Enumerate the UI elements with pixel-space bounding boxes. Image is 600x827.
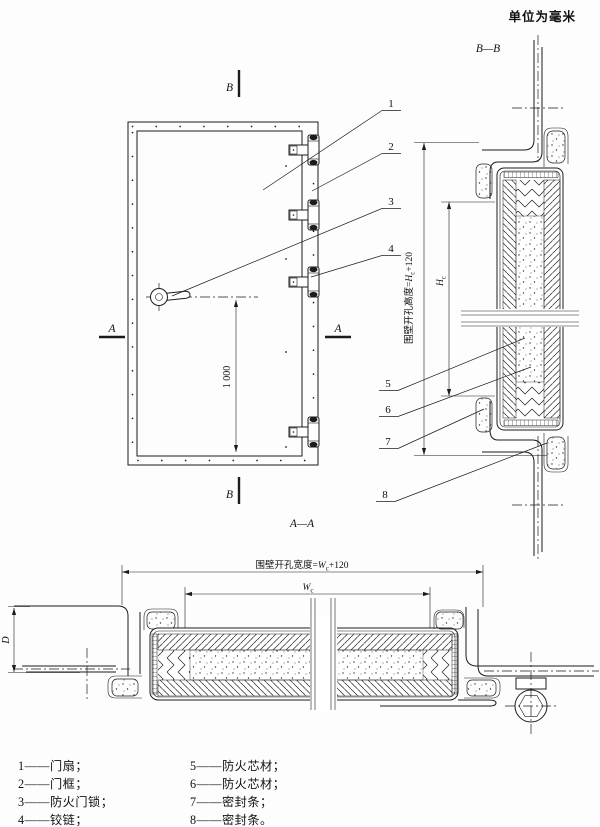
core-chevron-right — [423, 650, 452, 680]
legend-item-2: 2——门框； — [18, 775, 113, 793]
seal-strip-left-bottom — [112, 679, 138, 696]
dim-bb-outer-label: 围壁开孔高度=Hc+120 — [403, 252, 417, 344]
fire-core-layer-right — [544, 180, 560, 418]
technical-drawing: B B A A — [0, 0, 600, 827]
dim-depth-label: D — [1, 636, 12, 645]
frame-right-outer — [466, 607, 594, 666]
dim-aa-outer-label: 围壁开孔宽度=Wc+120 — [256, 559, 349, 573]
core-chevron-left — [158, 650, 190, 680]
legend-column-2: 5——防火芯材； 6——防火芯材； 7——密封条； 8——密封条。 — [190, 757, 285, 827]
dimension-depth: D — [1, 607, 80, 673]
drawing-page: 单位为毫米 — [0, 0, 600, 827]
dimension-bb-inner: Hc — [436, 202, 495, 396]
callout-6: 6 — [385, 404, 391, 416]
legend-item-7: 7——密封条； — [190, 793, 285, 811]
callout-8: 8 — [382, 489, 388, 501]
callout-1: 1 — [388, 98, 394, 110]
leaf-edge-channel-left — [152, 634, 157, 694]
legend-item-3: 3——防火门锁； — [18, 793, 113, 811]
callout-4: 4 — [388, 243, 394, 255]
break-band — [461, 309, 579, 327]
leaf-face-extension-plate — [380, 700, 496, 706]
legend-item-1: 1——门扇； — [18, 757, 113, 775]
leaf-edge-channel-right — [452, 634, 457, 694]
rivet-dots-right — [285, 165, 287, 448]
seal-strip-right-top — [436, 612, 463, 629]
leaf-edge-channel-top — [504, 172, 558, 178]
section-mark-b-top: B — [226, 82, 233, 94]
units-note: 单位为毫米 — [508, 6, 576, 25]
break-band-aa — [310, 616, 337, 712]
callout-7: 7 — [385, 436, 391, 448]
section-aa-title: A—A — [289, 518, 315, 530]
legend-item-6: 6——防火芯材； — [190, 775, 285, 793]
hinge-1 — [289, 135, 319, 165]
section-bb: B—B — [376, 35, 579, 560]
dim-aa-inner-label: Wc — [302, 583, 313, 595]
fire-core-layer-bottom — [158, 680, 452, 696]
fire-core-center-aa — [190, 650, 423, 680]
callout-5: 5 — [385, 378, 391, 390]
dimension-1000: 1 000 — [222, 300, 238, 452]
seal-strip-top-left — [476, 164, 492, 198]
leaf-edge-channel-bottom — [504, 420, 558, 426]
section-mark-a-left: A — [107, 323, 116, 335]
dimension-aa-inner: Wc — [185, 583, 430, 629]
hinge-4 — [289, 417, 319, 447]
hinge-section — [505, 652, 557, 736]
seal-strip-left-top — [147, 612, 175, 629]
door-leaf-section-aa — [150, 598, 458, 712]
hinge-2 — [289, 200, 319, 230]
legend-item-5: 5——防火芯材； — [190, 757, 285, 775]
door-leaf-section-bb — [461, 168, 579, 430]
legend-item-8: 8——密封条。 — [190, 811, 285, 827]
seal-strip-bottom-left — [476, 398, 492, 432]
seal-strip-bottom-right — [547, 437, 565, 469]
callout-3: 3 — [388, 196, 394, 208]
dim-bb-inner-label: Hc — [436, 276, 448, 287]
legend-item-4: 4——铰链； — [18, 811, 113, 827]
section-mark-b-bottom: B — [226, 489, 233, 501]
hinge-3 — [289, 267, 319, 297]
section-aa: 围壁开孔宽度=Wc+120 Wc D — [1, 559, 599, 736]
core-chevron-top — [516, 180, 544, 216]
section-bb-title: B—B — [476, 43, 500, 55]
core-chevron-bottom — [516, 382, 544, 418]
callouts-front: 1 2 3 4 — [172, 98, 401, 296]
hinges — [289, 135, 319, 447]
dim-1000-label: 1 000 — [222, 366, 233, 389]
seal-strip-top-right — [547, 131, 565, 163]
bulkhead-frame-bottom-outer — [482, 452, 534, 556]
callout-2: 2 — [388, 141, 394, 153]
fire-core-center — [516, 216, 544, 382]
bulkhead-frame-top-outer — [482, 40, 534, 150]
legend-column-1: 1——门扇； 2——门框； 3——防火门锁； 4——铰链； — [18, 757, 113, 827]
section-mark-a-right: A — [333, 323, 342, 335]
front-view: B B A A — [99, 70, 401, 530]
seal-strip-right-bottom — [467, 680, 496, 696]
fire-core-layer-left — [503, 180, 516, 418]
door-handle — [146, 283, 258, 311]
fire-core-layer-top — [158, 634, 452, 650]
